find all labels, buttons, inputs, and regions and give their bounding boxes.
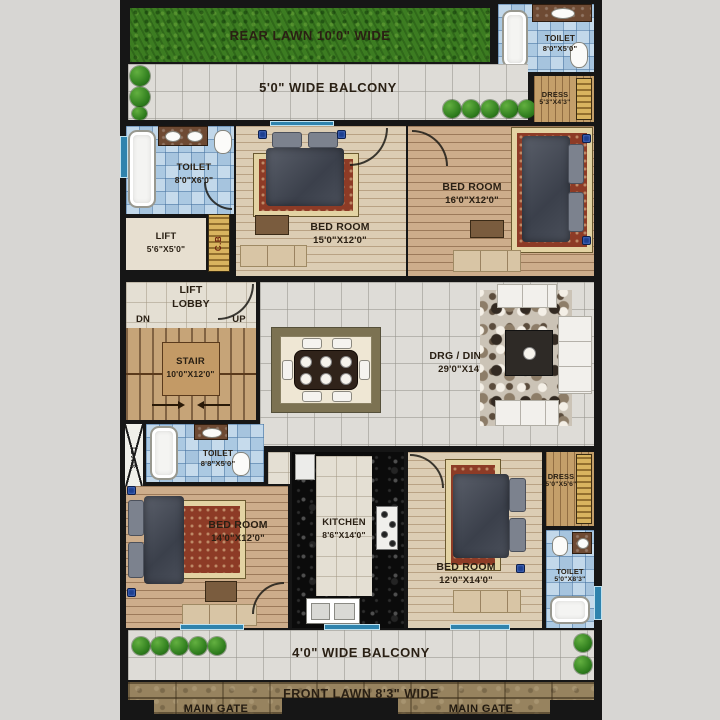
door-arc: [350, 128, 388, 166]
bed: [266, 126, 344, 206]
room-name: TOILET: [177, 162, 212, 174]
dress-bottom-right: DRESS 5'0"X5'6": [546, 452, 594, 526]
bedroom-14-label: BED ROOM 14'0"X12'0": [188, 512, 288, 552]
room-name: DRESS: [548, 472, 574, 482]
rear-lawn-text: REAR LAWN 10'0" WIDE: [230, 28, 391, 43]
sofa: [182, 604, 257, 626]
pillow: [128, 542, 144, 578]
pillow: [568, 144, 584, 184]
room-name: DRESS: [542, 90, 568, 100]
plant-icon: [132, 107, 147, 120]
dining-table: [294, 350, 358, 390]
pillow: [509, 478, 526, 512]
plate-icon: [340, 356, 352, 368]
stair-well: STAIR 10'0"X12'0": [162, 342, 220, 396]
plant-icon: [132, 637, 150, 655]
plant-icon: [481, 100, 499, 118]
boundary-wall: [120, 700, 154, 716]
stair-direction-line: [204, 404, 230, 406]
vanity-counter: [572, 532, 592, 554]
burner-icon: [389, 540, 396, 547]
bathtub-icon: [502, 10, 528, 68]
room-size: 8'8"X5'0": [201, 459, 236, 469]
plate-icon: [320, 356, 332, 368]
plant-icon: [500, 100, 518, 118]
toilet-icon: [214, 130, 232, 154]
room-size: 5'3"X4'3": [539, 99, 570, 108]
room-name: LIFT: [156, 231, 177, 243]
boundary-wall: [550, 700, 594, 716]
bathtub-icon: [550, 596, 590, 624]
chair: [282, 360, 293, 380]
plate-icon: [320, 373, 332, 385]
dress-top-right: DRESS 5'3"X4'3": [534, 76, 594, 122]
bedside-light-icon: [582, 236, 591, 245]
balcony-bottom: 4'0" WIDE BALCONY: [128, 630, 594, 680]
bedroom-12: BED ROOM 12'0"X14'0": [408, 452, 542, 628]
room-name: KITCHEN: [322, 517, 366, 529]
window-icon: [450, 624, 510, 630]
dress-bottom-right-label: DRESS 5'0"X5'6": [544, 464, 578, 498]
plant-icon: [151, 637, 169, 655]
chair: [302, 338, 322, 349]
bedside-light-icon: [127, 588, 136, 597]
sink-icon: [306, 598, 360, 624]
balcony-bottom-text: 4'0" WIDE BALCONY: [292, 645, 430, 660]
blanket: [144, 496, 184, 584]
plate-icon: [340, 373, 352, 385]
bedroom-16: BED ROOM 16'0"X12'0": [408, 126, 594, 276]
basin-icon: [165, 131, 181, 142]
dress-top-right-label: DRESS 5'3"X4'3": [534, 82, 576, 116]
sofa: [558, 316, 592, 394]
room-size: 8'0"X5'0": [543, 44, 578, 54]
plate-icon: [300, 356, 312, 368]
door-arc: [204, 182, 232, 210]
sink-bowl: [311, 603, 330, 620]
room-size: 5'0"X5'6": [545, 481, 576, 490]
sofa: [495, 400, 559, 426]
blanket: [266, 148, 344, 206]
plant-icon: [189, 637, 207, 655]
room-name: TOILET: [203, 449, 233, 460]
pillow: [509, 518, 526, 552]
balcony-top: 5'0" WIDE BALCONY: [128, 64, 528, 120]
blanket: [522, 136, 570, 242]
plant-icon: [130, 66, 150, 86]
toilet-bottom-right-label: TOILET 5'0"X8'3": [546, 560, 594, 592]
plate-icon: [300, 373, 312, 385]
vanity-counter: [194, 424, 228, 440]
room-size: 10'0"X12'0": [166, 369, 214, 380]
plant-icon: [574, 656, 592, 674]
bathtub-icon: [150, 426, 178, 480]
balcony-top-text: 5'0" WIDE BALCONY: [259, 80, 397, 95]
main-gate-right-text: MAIN GATE: [449, 703, 514, 715]
cupboard-label: C.B: [215, 235, 224, 250]
room-name: BED ROOM: [310, 221, 369, 235]
bathtub-icon: [128, 130, 156, 208]
bed: [126, 494, 184, 586]
toilet-mid-left-label: TOILET 8'8"X5'0": [182, 442, 254, 476]
room-name: LOBBY: [172, 298, 210, 312]
burner-icon: [381, 511, 388, 518]
floor-plan-image: REAR LAWN 10'0" WIDE TOILET 8'0"X5'0" 5'…: [0, 0, 720, 720]
chair: [302, 391, 322, 402]
stair-direction-line: [152, 404, 178, 406]
bedroom-12-label: BED ROOM 12'0"X14'0": [410, 554, 522, 594]
rear-lawn-label: REAR LAWN 10'0" WIDE: [130, 26, 490, 44]
kitchen-label: KITCHEN 8'6"X14'0": [312, 510, 376, 548]
room-name: TOILET: [556, 567, 583, 577]
bedside-light-icon: [127, 486, 136, 495]
room-name: TOILET: [545, 34, 575, 45]
window-icon: [120, 136, 128, 178]
pillow: [128, 500, 144, 536]
main-gate-right: MAIN GATE: [412, 701, 550, 717]
staircase: STAIR 10'0"X12'0": [126, 328, 256, 420]
bedside-light-icon: [337, 130, 346, 139]
room-name: LIFT: [180, 284, 203, 298]
sofa: [453, 250, 521, 272]
bed: [453, 470, 529, 560]
bed: [522, 132, 588, 246]
door-arc: [410, 454, 444, 488]
floor-plan: REAR LAWN 10'0" WIDE TOILET 8'0"X5'0" 5'…: [120, 0, 602, 720]
basin-icon: [577, 538, 589, 549]
cupboard: C.B: [208, 214, 230, 272]
room-size: 8'6"X14'0": [322, 530, 365, 541]
toilet-top-right: TOILET 8'0"X5'0": [498, 4, 594, 72]
plant-icon: [462, 100, 480, 118]
basin-icon: [187, 131, 203, 142]
stair-arrow-icon: [197, 401, 204, 409]
stair-dn-label: DN: [130, 313, 156, 327]
stove-icon: [376, 506, 398, 550]
toilet-left: TOILET 8'0"X6'0": [126, 126, 234, 214]
pillow: [568, 192, 584, 232]
stair-arrow-icon: [178, 401, 185, 409]
window-icon: [180, 624, 244, 630]
sink-bowl: [334, 603, 355, 620]
bedroom-15-label: BED ROOM 15'0"X12'0": [280, 214, 400, 254]
plant-icon: [130, 87, 150, 107]
plant-icon: [208, 637, 226, 655]
plant-icon: [443, 100, 461, 118]
basin-icon: [202, 428, 222, 438]
kitchen-floor: KITCHEN 8'6"X14'0": [316, 456, 372, 596]
window-icon: [270, 121, 334, 126]
main-gate-left-text: MAIN GATE: [184, 703, 249, 715]
window-icon: [324, 624, 380, 630]
lift-room: LIFT 5'6"X5'0": [126, 218, 206, 270]
room-size: 16'0"X12'0": [445, 195, 499, 207]
chair: [359, 360, 370, 380]
bedside-light-icon: [258, 130, 267, 139]
stair-label: STAIR 10'0"X12'0": [163, 347, 218, 389]
dresser: [470, 220, 504, 238]
dn-text: DN: [136, 314, 150, 326]
center-table: [505, 330, 553, 376]
pillow: [272, 132, 302, 148]
room-size: 12'0"X14'0": [439, 575, 493, 587]
room-size: 5'0"X8'3": [554, 576, 585, 585]
room-name: STAIR: [176, 356, 205, 368]
door-arc: [252, 582, 284, 614]
vanity-counter: [532, 4, 592, 22]
main-gate-left: MAIN GATE: [150, 701, 282, 717]
blanket: [453, 474, 509, 558]
lift-lobby: LIFT LOBBY DN UP: [126, 282, 256, 328]
burner-icon: [389, 521, 396, 528]
bedroom-16-label: BED ROOM 16'0"X12'0": [416, 174, 528, 214]
rear-lawn: REAR LAWN 10'0" WIDE: [130, 8, 490, 62]
bedroom-14: BED ROOM 14'0"X12'0": [126, 486, 288, 628]
toilet-bottom-right: TOILET 5'0"X8'3": [546, 530, 594, 628]
room-name: BED ROOM: [436, 561, 495, 575]
plant-icon: [170, 637, 188, 655]
drg-dining: DRG / DINING 29'0"X14'6": [260, 282, 594, 446]
toilet-mid-left: TOILET 8'8"X5'0": [146, 424, 264, 482]
burner-icon: [381, 531, 388, 538]
bedside-light-icon: [582, 134, 591, 143]
dresser: [205, 581, 237, 602]
bowl-icon: [523, 347, 536, 360]
kitchen: KITCHEN 8'6"X14'0": [292, 452, 404, 628]
chair: [332, 391, 352, 402]
dining-rug: [272, 328, 380, 412]
basin-icon: [551, 8, 575, 19]
room-name: BED ROOM: [208, 519, 267, 533]
room-size: 15'0"X12'0": [313, 235, 367, 247]
pillow: [308, 132, 338, 148]
door-arc: [412, 130, 448, 166]
balcony-top-label: 5'0" WIDE BALCONY: [128, 78, 528, 96]
wardrobe-icon: [576, 454, 592, 524]
boundary-wall: [282, 698, 398, 716]
lift-label: LIFT 5'6"X5'0": [126, 224, 206, 262]
chair: [332, 338, 352, 349]
wardrobe-icon: [576, 78, 592, 120]
toilet-top-right-label: TOILET 8'0"X5'0": [528, 26, 592, 62]
fridge-icon: [295, 454, 315, 480]
room-size: 5'6"X5'0": [147, 244, 185, 255]
toilet-icon: [552, 536, 568, 556]
plant-icon: [574, 634, 592, 652]
sofa: [497, 284, 557, 308]
bedroom-15: BED ROOM 15'0"X12'0": [236, 126, 406, 276]
window-icon: [594, 586, 602, 620]
shaft-label: SHAFT: [131, 446, 137, 469]
room-name: BED ROOM: [442, 181, 501, 195]
passage: [268, 452, 290, 484]
room-size: 14'0"X12'0": [211, 533, 265, 545]
vanity-counter: [158, 126, 208, 146]
shaft: SHAFT: [125, 424, 143, 490]
